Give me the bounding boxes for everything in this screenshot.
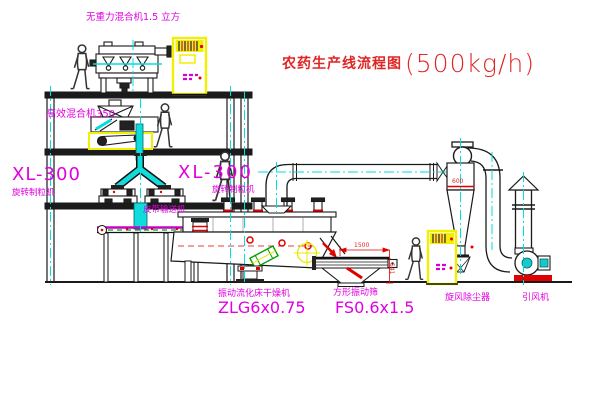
granulator-right-drawing <box>145 189 185 203</box>
cyclone-exhaust-duct-drawing <box>468 148 512 272</box>
label-dryer-model: ZLG6x0.75 <box>218 300 306 316</box>
label-granulator-right-model: XL-300 <box>178 164 253 182</box>
control-cabinet-right <box>426 231 458 284</box>
person-figure <box>405 238 423 279</box>
person-figure <box>71 45 90 89</box>
label-fan: 引风机 <box>522 294 549 303</box>
label-belt-conveyor: 皮带输送机 <box>143 206 186 215</box>
dimension-sieve-height: 541 <box>388 263 394 274</box>
granulator-left-drawing <box>99 189 137 203</box>
dimension-cyclone: 600 <box>452 179 463 185</box>
title-capacity: (500kg/h) <box>405 51 535 76</box>
gravity-free-mixer-drawing <box>90 42 171 93</box>
title-chinese: 农药生产线流程图 <box>282 51 402 71</box>
label-gravity-free-mixer: 无重力混合机1.5 立方 <box>86 13 180 23</box>
label-granulator-left-name: 旋转制粒机 <box>12 189 55 198</box>
control-cabinet-top <box>171 38 208 95</box>
process-flow-diagram: 无重力混合机1.5 立方 农药生产线流程图 (500kg/h) 高效混合机350… <box>0 0 600 403</box>
dimension-sieve-length: 1500 <box>354 243 369 249</box>
page-title: 农药生产线流程图 (500kg/h) <box>282 51 535 76</box>
dryer-exhaust-duct-drawing <box>262 163 448 213</box>
label-high-speed-mixer: 高效混合机350 <box>46 110 115 120</box>
label-sieve-name: 方形振动筛 <box>333 289 378 298</box>
label-granulator-right-name: 旋转制粒机 <box>212 186 255 195</box>
fan-base <box>514 275 552 281</box>
label-cyclone: 旋风除尘器 <box>445 294 490 303</box>
feed-inlet-cap <box>191 218 209 222</box>
label-sieve-model: FS0.6x1.5 <box>335 300 414 316</box>
label-granulator-left-model: XL-300 <box>12 166 81 184</box>
fan-drawing <box>514 248 552 281</box>
